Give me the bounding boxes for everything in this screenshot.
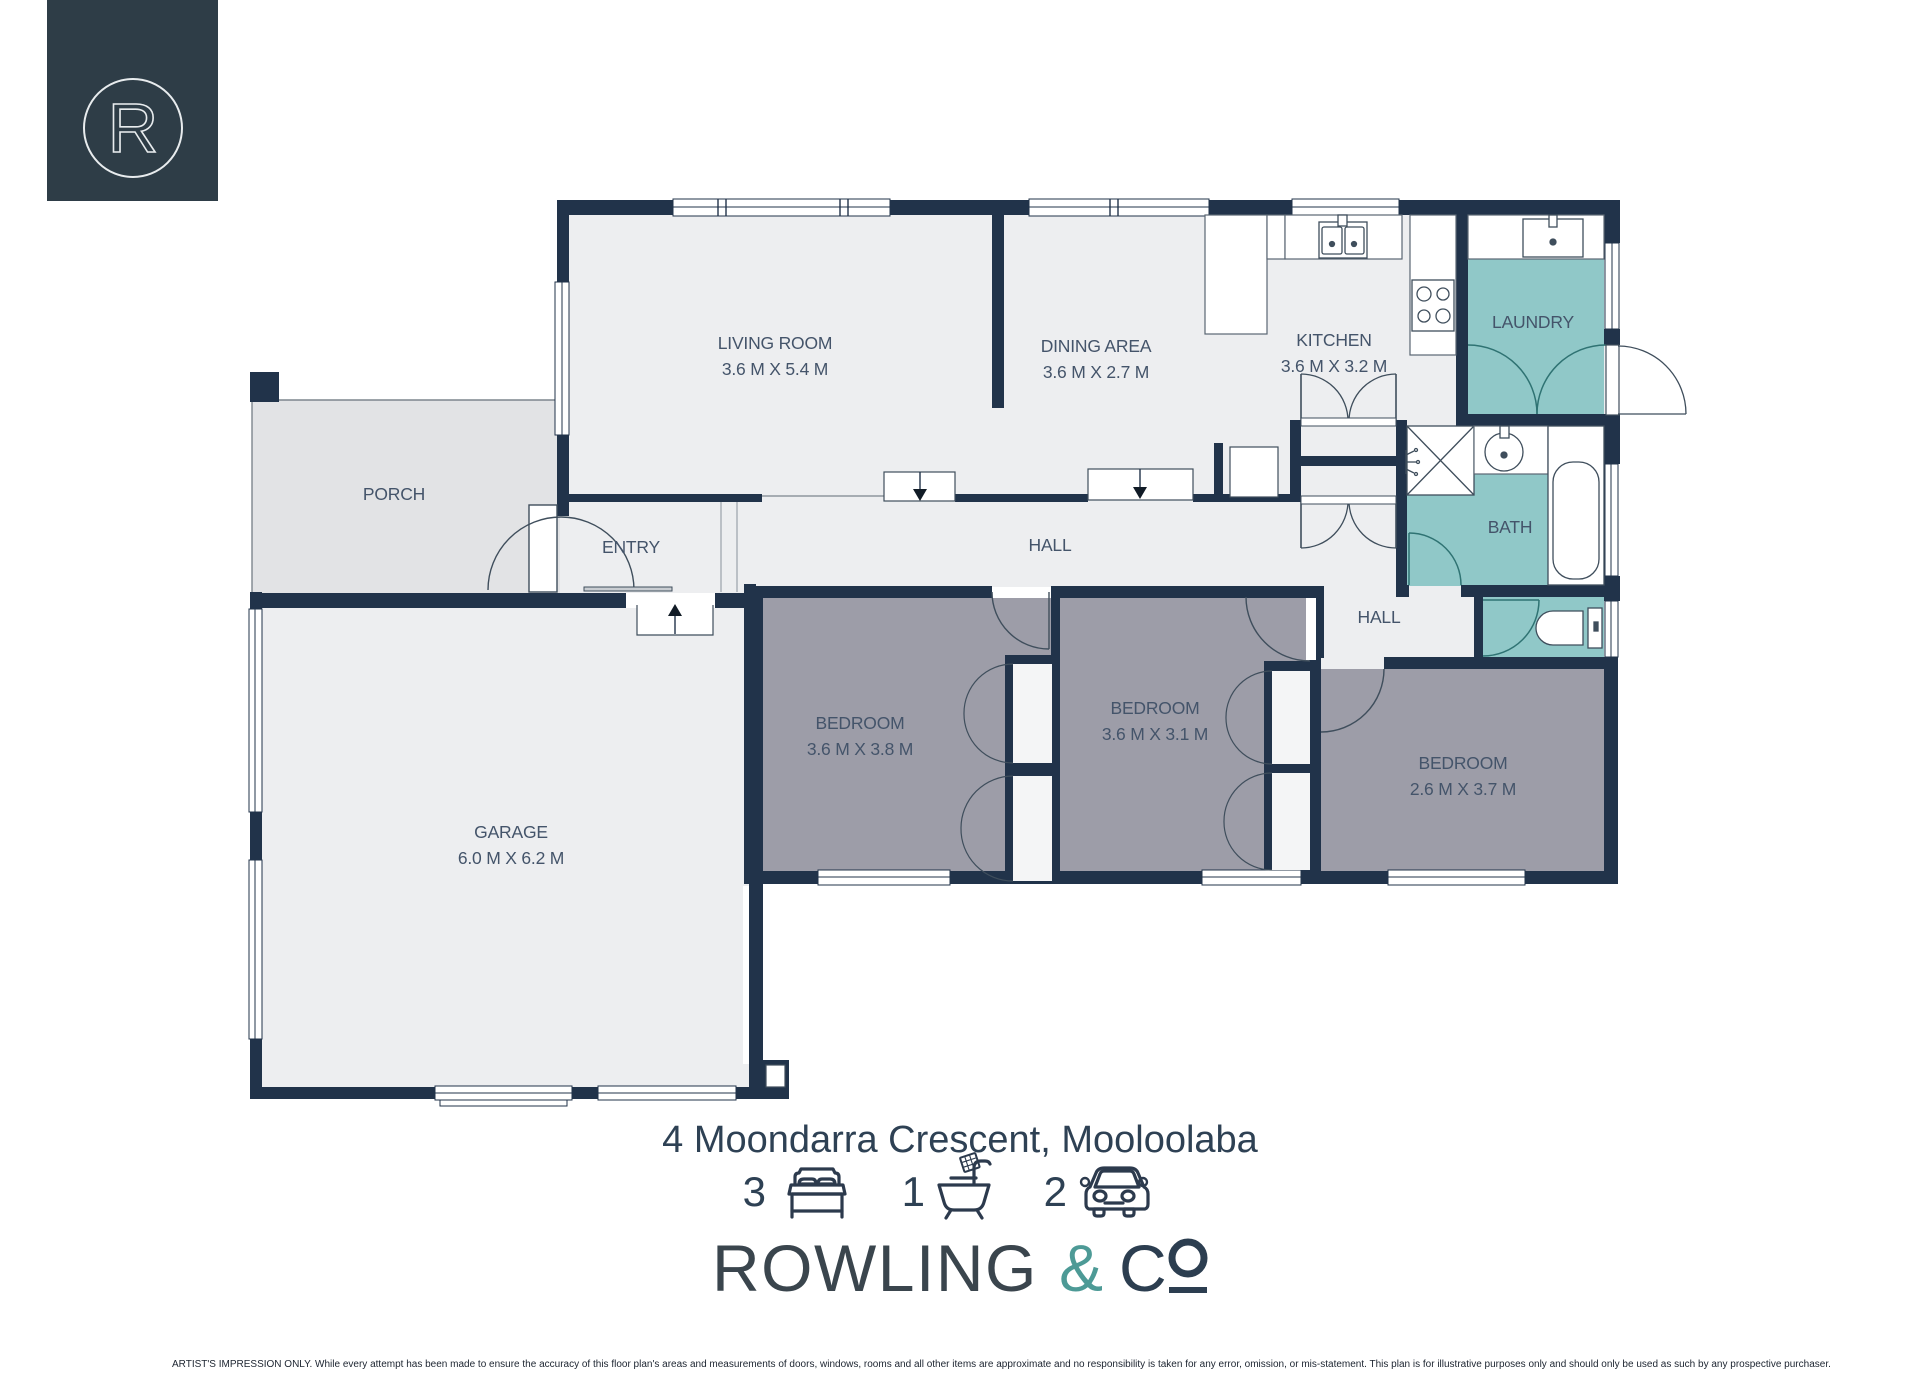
svg-text:ARTIST'S IMPRESSION ONLY. Whil: ARTIST'S IMPRESSION ONLY. While every at… [172,1359,1831,1370]
svg-text:3.6 M X 3.1 M: 3.6 M X 3.1 M [1102,724,1208,744]
svg-text:BEDROOM: BEDROOM [815,713,904,733]
svg-text:ROWLING: ROWLING [712,1231,1038,1305]
svg-text:2.6 M X 3.7 M: 2.6 M X 3.7 M [1410,779,1516,799]
svg-text:BATH: BATH [1488,517,1533,537]
svg-text:1: 1 [902,1168,925,1215]
svg-text:3.6 M X 3.2 M: 3.6 M X 3.2 M [1281,356,1387,376]
svg-text:&: & [1059,1231,1103,1305]
svg-text:3.6 M X 3.8 M: 3.6 M X 3.8 M [807,739,913,759]
svg-text:ENTRY: ENTRY [602,537,661,557]
svg-text:3.6 M X 2.7 M: 3.6 M X 2.7 M [1043,362,1149,382]
svg-text:3.6 M X 5.4 M: 3.6 M X 5.4 M [722,359,828,379]
svg-text:BEDROOM: BEDROOM [1418,753,1507,773]
svg-text:KITCHEN: KITCHEN [1296,330,1371,350]
svg-text:C: C [1119,1231,1167,1305]
svg-text:6.0 M X 6.2 M: 6.0 M X 6.2 M [458,848,564,868]
svg-text:LAUNDRY: LAUNDRY [1492,312,1574,332]
svg-text:4 Moondarra Crescent, Mooloola: 4 Moondarra Crescent, Mooloolaba [662,1119,1259,1161]
svg-text:PORCH: PORCH [363,484,425,504]
svg-text:2: 2 [1044,1168,1067,1215]
svg-text:DINING AREA: DINING AREA [1041,336,1152,356]
svg-text:HALL: HALL [1358,607,1401,627]
svg-text:GARAGE: GARAGE [474,822,548,842]
svg-text:BEDROOM: BEDROOM [1110,698,1199,718]
svg-text:HALL: HALL [1029,535,1072,555]
svg-text:LIVING ROOM: LIVING ROOM [718,333,832,353]
svg-text:R: R [108,89,159,167]
svg-text:3: 3 [743,1168,766,1215]
